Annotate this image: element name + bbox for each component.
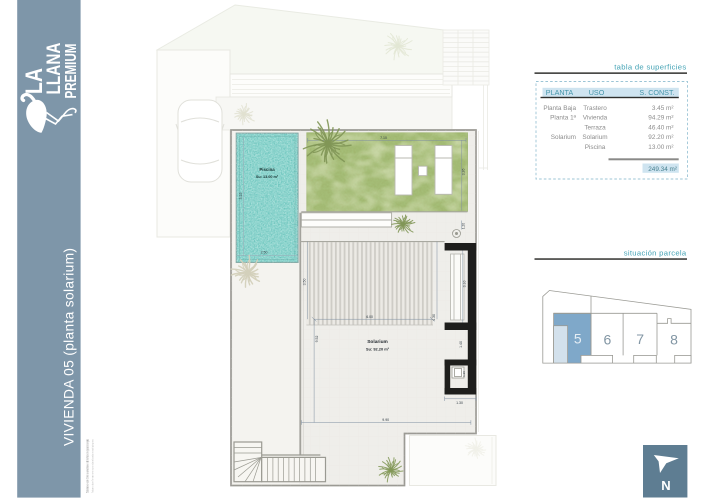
svg-text:249.34 m²: 249.34 m²: [648, 166, 677, 173]
svg-text:LLANA: LLANA: [44, 42, 65, 94]
svg-text:situación parcela: situación parcela: [624, 249, 687, 258]
svg-text:Terraza: Terraza: [584, 124, 606, 131]
svg-text:3.50: 3.50: [303, 279, 307, 286]
svg-text:*Este documento es orientativo: *Este documento es orientativo. El promo…: [86, 439, 90, 493]
svg-text:9.52: 9.52: [315, 336, 319, 343]
svg-text:Piscina: Piscina: [259, 167, 275, 172]
svg-text:7.10: 7.10: [380, 136, 387, 140]
svg-text:Planta 1ª: Planta 1ª: [550, 115, 576, 122]
svg-text:Su: 92.20 m²: Su: 92.20 m²: [366, 346, 390, 351]
svg-text:3.45 m²: 3.45 m²: [652, 105, 674, 112]
svg-text:2.50: 2.50: [261, 251, 268, 255]
svg-text:3.10: 3.10: [462, 281, 466, 288]
svg-text:1.20: 1.20: [461, 223, 465, 229]
svg-text:PLANTA: PLANTA: [546, 88, 574, 97]
svg-text:Su: 13.00 m²: Su: 13.00 m²: [256, 175, 279, 179]
svg-text:Vivienda: Vivienda: [583, 115, 608, 122]
svg-text:6.00: 6.00: [366, 315, 373, 319]
svg-text:5.23: 5.23: [239, 193, 243, 200]
svg-text:Trastero: Trastero: [583, 105, 607, 112]
svg-text:8: 8: [670, 332, 678, 348]
svg-text:USO: USO: [589, 88, 605, 97]
svg-text:6: 6: [604, 332, 612, 348]
svg-text:Planta Baja: Planta Baja: [543, 105, 576, 112]
svg-text:tabla de superficies: tabla de superficies: [614, 63, 686, 72]
svg-text:VIVIENDA 05 (planta solarium): VIVIENDA 05 (planta solarium): [62, 248, 77, 446]
svg-text:13.00 m²: 13.00 m²: [648, 144, 673, 151]
svg-text:1.26: 1.26: [462, 371, 466, 377]
svg-text:Piscina: Piscina: [585, 144, 606, 151]
svg-text:92.20 m²: 92.20 m²: [648, 134, 673, 141]
svg-text:3.26: 3.26: [462, 169, 466, 176]
svg-text:46.40 m²: 46.40 m²: [648, 124, 673, 131]
svg-text:S. CONST.: S. CONST.: [639, 88, 674, 97]
svg-text:Solarium: Solarium: [582, 134, 607, 141]
svg-text:1.40: 1.40: [459, 341, 463, 348]
svg-text:This document is indicative. T: This document is indicative. The promote…: [91, 439, 95, 493]
svg-text:9.90: 9.90: [382, 418, 389, 422]
svg-text:7: 7: [636, 331, 644, 347]
svg-text:Solarium: Solarium: [551, 134, 576, 141]
svg-text:5: 5: [574, 331, 582, 347]
svg-text:Solarium: Solarium: [367, 339, 388, 345]
svg-text:4.30: 4.30: [432, 314, 436, 321]
svg-text:N: N: [661, 478, 670, 493]
svg-text:94.29 m²: 94.29 m²: [648, 115, 673, 122]
svg-text:1.30: 1.30: [456, 401, 463, 405]
svg-text:PREMIUM: PREMIUM: [63, 44, 80, 99]
